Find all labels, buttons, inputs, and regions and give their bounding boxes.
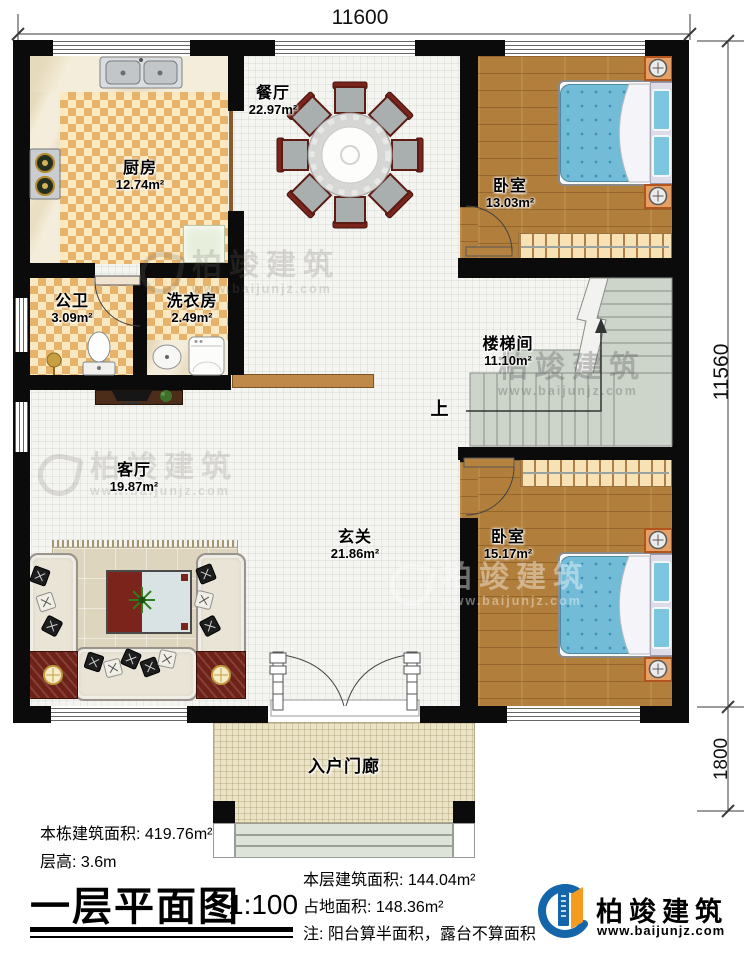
title-underline-thin	[30, 936, 293, 938]
tv	[112, 391, 152, 401]
tv-plant	[160, 390, 172, 402]
area-note: 注: 阳台算半面积，露台不算面积	[303, 920, 536, 944]
bathroom-door-leaf	[95, 276, 140, 285]
sheet-scale: 1:100	[228, 889, 298, 921]
bedroom-bottom-door-leaf	[464, 458, 514, 467]
label-stair-up: 上	[415, 399, 465, 419]
dimension-porch: 1800	[711, 704, 733, 814]
label-bedroom-top: 卧室13.03m²	[455, 178, 565, 210]
bedroom-top-door-leaf	[466, 247, 512, 256]
label-kitchen: 厨房12.74m²	[85, 160, 195, 192]
label-porch: 入户门廊	[289, 757, 399, 776]
bed-bottom-sheet-fold	[619, 556, 650, 654]
label-living: 客厅19.87m²	[79, 462, 189, 494]
floor-area: 本层建筑面积: 144.04m²	[303, 866, 476, 890]
total-building-area: 本栋建筑面积: 419.76m²	[40, 820, 213, 844]
bath-laundry-fixtures	[47, 332, 224, 375]
footprint-area: 占地面积: 148.36m²	[303, 893, 444, 917]
brand-website: www.baijunjz.com	[597, 923, 725, 938]
label-stairwell: 楼梯间11.10m²	[453, 336, 563, 368]
brand-logo-icon	[538, 884, 592, 942]
label-bathroom: 公卫3.09m²	[17, 293, 127, 325]
label-bedroom-bottom: 卧室15.17m²	[453, 529, 563, 561]
dimension-top: 11600	[295, 6, 425, 30]
label-laundry: 洗衣房2.49m²	[137, 293, 247, 325]
floor-plan-sheet: 柏竣建筑www.baijunjz.com 柏竣建筑www.baijunjz.co…	[0, 0, 750, 953]
sheet-title: 一层平面图	[30, 874, 240, 932]
entrance-double-door	[270, 652, 420, 716]
living-room-details	[30, 390, 230, 684]
label-dining: 餐厅22.97m²	[218, 85, 328, 117]
bed-top-sheet-fold	[619, 84, 650, 182]
dimension-side: 11560	[710, 311, 734, 433]
title-underline-thick	[30, 927, 293, 932]
sofa-pillows	[30, 564, 221, 678]
floor-height: 层高: 3.6m	[40, 848, 116, 872]
label-foyer: 玄关21.86m²	[300, 529, 410, 561]
table-lamps	[44, 666, 230, 684]
